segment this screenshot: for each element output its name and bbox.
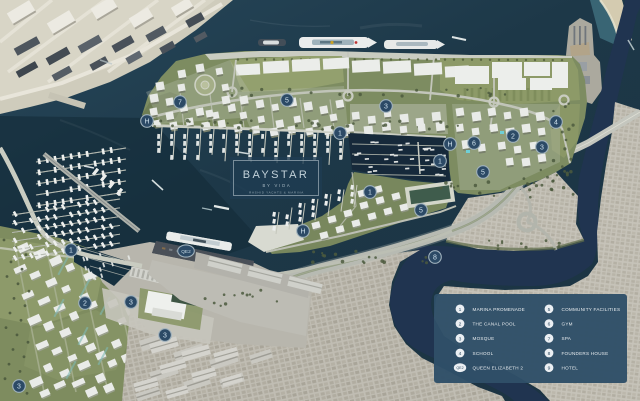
svg-text:H: H (447, 142, 452, 149)
svg-text:QE2: QE2 (456, 366, 463, 370)
svg-text:7: 7 (178, 100, 182, 107)
svg-text:H: H (300, 229, 305, 236)
svg-text:6: 6 (472, 141, 476, 148)
svg-text:FOUNDERS HOUSE: FOUNDERS HOUSE (562, 351, 609, 356)
svg-text:2: 2 (459, 322, 462, 328)
svg-text:1: 1 (459, 307, 462, 313)
svg-text:3: 3 (17, 384, 21, 391)
svg-text:GYM: GYM (562, 322, 573, 327)
svg-text:3: 3 (540, 145, 544, 152)
svg-text:3: 3 (163, 333, 167, 340)
svg-text:THE CANAL POOL: THE CANAL POOL (473, 322, 516, 327)
svg-text:5: 5 (419, 208, 423, 215)
svg-text:HOTEL: HOTEL (562, 366, 579, 371)
svg-text:5: 5 (481, 170, 485, 177)
svg-text:3: 3 (459, 336, 462, 342)
svg-text:SPA: SPA (562, 336, 572, 341)
svg-text:4: 4 (554, 120, 558, 127)
svg-text:H: H (144, 119, 149, 126)
svg-text:1: 1 (438, 159, 442, 166)
svg-text:QUEEN ELIZABETH 2: QUEEN ELIZABETH 2 (473, 366, 524, 371)
svg-text:5: 5 (285, 98, 289, 105)
svg-text:RASHID YACHTS & MARINA: RASHID YACHTS & MARINA (249, 191, 304, 195)
svg-text:MARINA PROMENADE: MARINA PROMENADE (473, 307, 526, 312)
svg-text:BY VIDA: BY VIDA (262, 183, 291, 188)
svg-text:1: 1 (69, 248, 73, 255)
svg-text:MOSQUE: MOSQUE (473, 336, 495, 341)
svg-text:1: 1 (338, 131, 342, 138)
svg-text:2: 2 (511, 134, 515, 141)
svg-text:8: 8 (433, 255, 437, 262)
svg-text:8: 8 (548, 351, 551, 357)
svg-text:9: 9 (548, 366, 551, 372)
svg-text:5: 5 (548, 307, 551, 313)
svg-text:3: 3 (384, 104, 388, 111)
svg-text:4: 4 (459, 351, 462, 357)
svg-text:6: 6 (548, 322, 551, 328)
svg-text:7: 7 (548, 336, 551, 342)
svg-text:SCHOOL: SCHOOL (473, 351, 494, 356)
svg-text:3: 3 (129, 300, 133, 307)
svg-text:1: 1 (368, 190, 372, 197)
svg-text:QE2: QE2 (181, 249, 191, 255)
svg-text:COMMUNITY FACILITIES: COMMUNITY FACILITIES (562, 307, 621, 312)
svg-text:2: 2 (83, 301, 87, 308)
svg-text:BAYSTAR: BAYSTAR (243, 169, 310, 181)
